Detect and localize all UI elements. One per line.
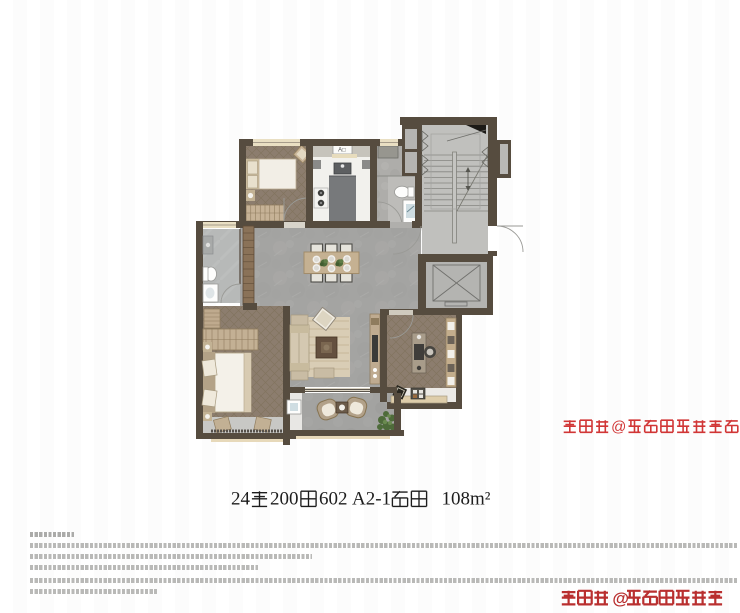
svg-text:@: @ <box>612 589 629 608</box>
svg-text:@: @ <box>611 419 626 436</box>
